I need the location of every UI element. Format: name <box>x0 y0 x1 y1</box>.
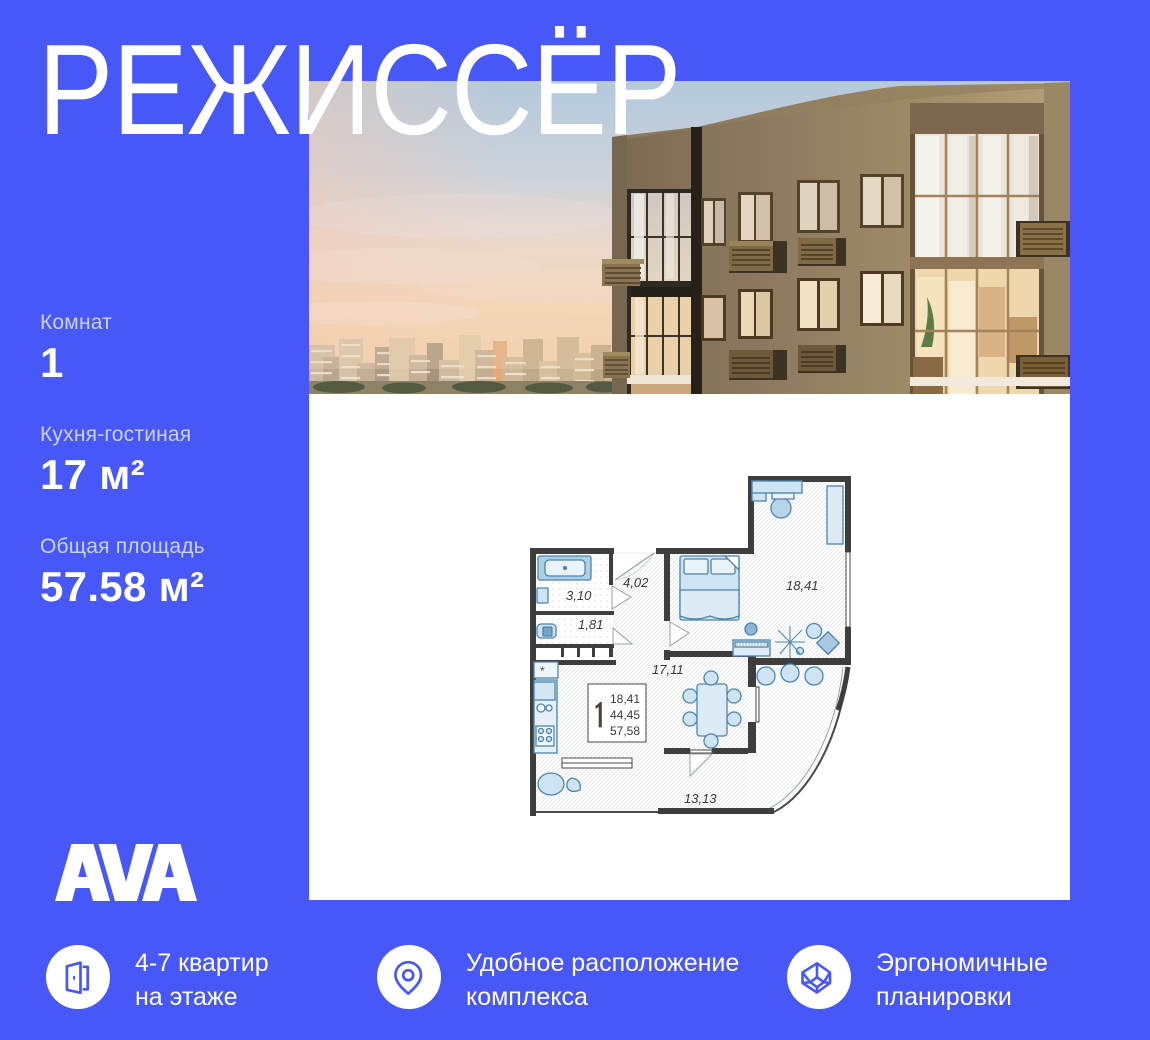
svg-text:3,10: 3,10 <box>566 588 592 603</box>
svg-text:1,81: 1,81 <box>578 617 603 632</box>
svg-text:18,41: 18,41 <box>610 692 640 706</box>
svg-text:57,58: 57,58 <box>610 724 640 738</box>
svg-text:44,45: 44,45 <box>610 708 640 722</box>
svg-text:18,41: 18,41 <box>786 578 819 593</box>
svg-text:17,11: 17,11 <box>652 662 684 677</box>
svg-text:*: * <box>540 664 545 678</box>
svg-text:4,02: 4,02 <box>623 575 649 590</box>
svg-text:13,13: 13,13 <box>684 791 717 806</box>
